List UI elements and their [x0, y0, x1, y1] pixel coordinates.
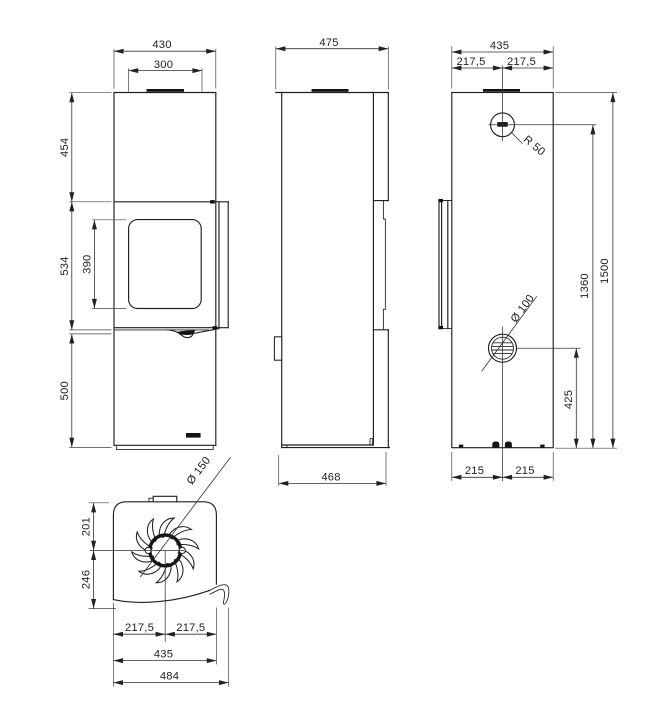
- front-plinth: [117, 445, 214, 449]
- dim-front-base-height: 500: [59, 381, 71, 400]
- top-dimensions: 201 246 217,5 217,5 435 484: [80, 503, 228, 687]
- technical-drawing-stove: 430 300 454 534 390 500: [0, 0, 648, 719]
- side-dimensions: 475 468: [276, 37, 389, 486]
- dim-front-top-width: 300: [154, 59, 173, 71]
- front-window: [129, 220, 202, 309]
- rear-dimensions: 435 217,5 217,5 425 1360 1500 215 215: [452, 40, 617, 481]
- dim-flue-height: 1360: [579, 273, 591, 299]
- rear-air-intake: Ø 100: [482, 293, 581, 481]
- rear-door-edge: [439, 201, 448, 329]
- front-view: 430 300 454 534 390 500: [59, 39, 228, 449]
- rear-foot-right: [505, 442, 512, 448]
- dim-top-body-width: 435: [154, 648, 173, 660]
- front-outline: [114, 90, 228, 449]
- dim-flue-radius: R 50: [521, 134, 547, 159]
- dim-front-upper-height: 454: [59, 138, 71, 157]
- top-handle: [210, 585, 229, 604]
- side-view: 475 468: [274, 37, 389, 486]
- rear-foot-outer-right: [540, 445, 544, 448]
- side-outline: [274, 90, 389, 447]
- dim-intake-height: 425: [563, 390, 575, 409]
- drawing-canvas: 430 300 454 534 390 500: [0, 0, 648, 719]
- dim-total-height: 1500: [599, 258, 611, 284]
- rear-view: R 50 Ø 100 435 217,5 217,5 425 1360: [438, 40, 617, 481]
- dim-front-window-height: 390: [81, 255, 93, 274]
- top-front-curve: [113, 590, 209, 602]
- dim-rear-half-right: 217,5: [507, 56, 536, 68]
- top-flue-assembly: Ø 150: [90, 455, 231, 642]
- dim-front-width: 430: [152, 39, 171, 51]
- side-rear-recess: [383, 201, 385, 330]
- dim-top-flue-diameter: Ø 150: [185, 455, 214, 487]
- top-view: Ø 150 201 246 217,5 217,5 435 484: [80, 455, 230, 687]
- front-dimensions: 430 300 454 534 390 500: [59, 39, 216, 447]
- top-flue-connector: [153, 496, 177, 502]
- dim-side-depth: 475: [319, 37, 338, 49]
- dim-top-half-right: 217,5: [176, 622, 205, 634]
- dim-intake-diameter: Ø 100: [509, 293, 537, 325]
- rear-flue-outlet: R 50: [489, 66, 597, 159]
- rear-foot-outer-left: [459, 445, 463, 448]
- side-handle: [274, 337, 281, 360]
- rear-hinge-top: [438, 199, 443, 202]
- dim-rear-half-left: 217,5: [457, 56, 486, 68]
- dim-front-door-height: 534: [59, 256, 71, 275]
- dim-rear-width: 435: [490, 40, 509, 52]
- front-hinge-top: [210, 200, 215, 204]
- dim-top-half-left: 217,5: [125, 622, 154, 634]
- dim-foot-left: 215: [465, 465, 484, 477]
- front-logo-badge: [186, 433, 201, 438]
- dim-top-offset-back: 201: [80, 517, 92, 536]
- rear-hinge-bottom: [438, 326, 443, 329]
- dim-side-base-depth: 468: [321, 471, 340, 483]
- dim-top-base-width: 484: [160, 670, 179, 682]
- dim-foot-right: 215: [515, 465, 534, 477]
- rear-foot-left: [492, 442, 499, 448]
- dim-top-offset-front: 246: [80, 570, 92, 589]
